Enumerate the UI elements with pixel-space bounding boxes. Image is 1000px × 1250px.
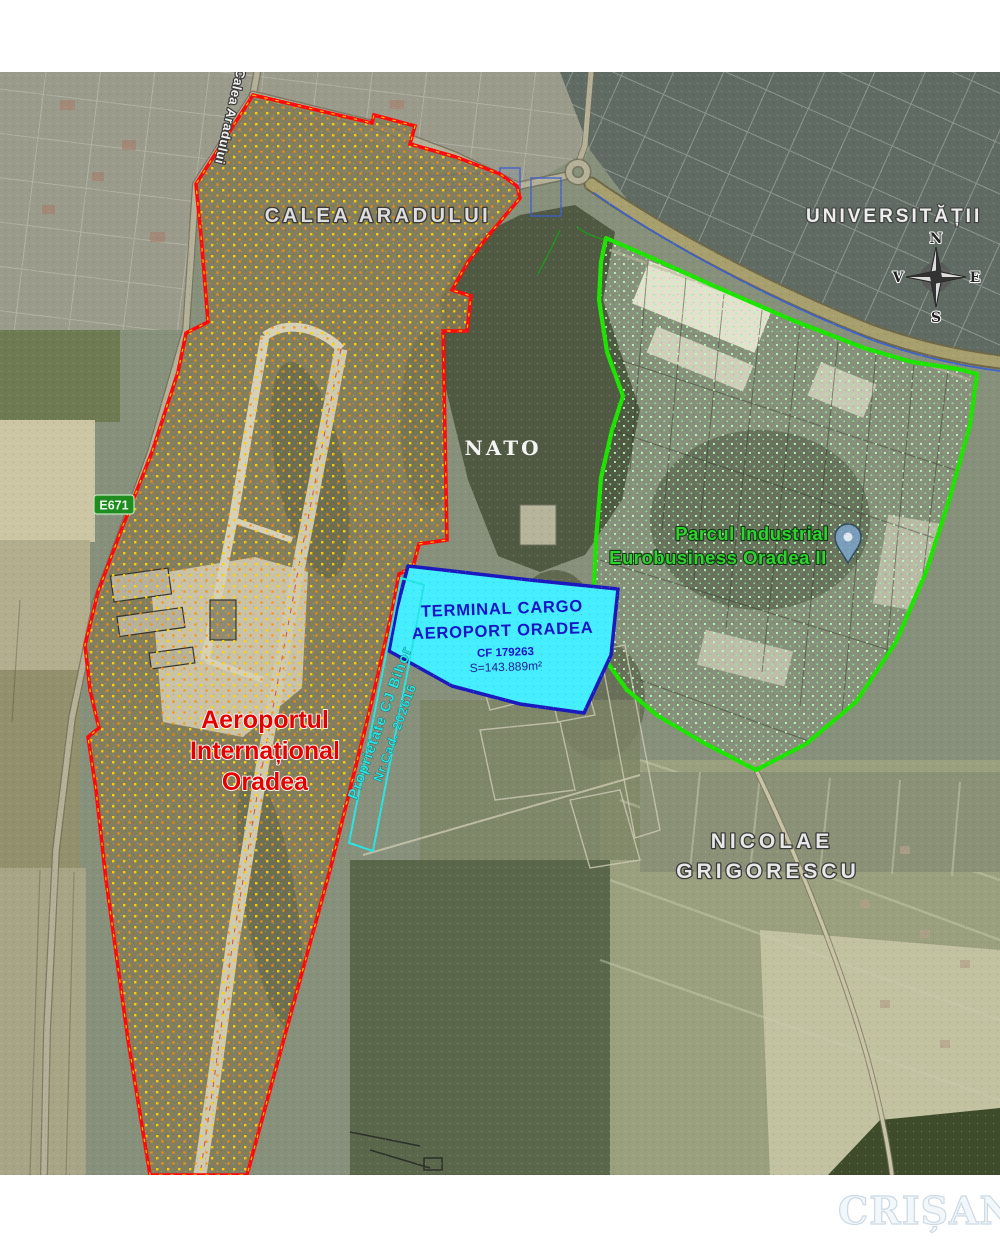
compass-east: E xyxy=(970,270,981,286)
label-parcul-line1: Parcul Industrial xyxy=(675,523,828,544)
label-nicolae: NICOLAE xyxy=(711,830,834,853)
label-aeroportul-line2: Internațional xyxy=(190,737,340,765)
e671-label: E671 xyxy=(99,499,128,513)
label-parcul-line2: Eurobusiness Oradea II xyxy=(609,547,827,568)
label-calea-aradului: CALEA ARADULUI xyxy=(265,205,491,227)
label-nato: NATO xyxy=(464,436,541,460)
terminal-cf: CF 179263 xyxy=(477,646,534,660)
label-universitatii: UNIVERSITĂȚII xyxy=(806,205,982,227)
e671-badge: E671 xyxy=(94,495,134,514)
compass-west: V xyxy=(892,270,905,286)
watermark: CRIȘANA xyxy=(838,1188,998,1240)
compass-north: N xyxy=(930,231,943,247)
satellite-map: E671 N S E V Calea Aradului CALEA ARADUL… xyxy=(0,72,1000,1175)
label-aeroportul-line1: Aeroportul xyxy=(201,706,329,734)
terminal-area: S=143.889m² xyxy=(470,659,543,676)
map-graphics: E671 N S E V Calea Aradului CALEA ARADUL… xyxy=(0,72,1000,1175)
map-figure: E671 N S E V Calea Aradului CALEA ARADUL… xyxy=(0,0,1000,1250)
label-aeroportul-line3: Oradea xyxy=(222,768,309,796)
compass-south: S xyxy=(931,310,941,326)
label-grigorescu: GRIGORESCU xyxy=(676,860,860,883)
